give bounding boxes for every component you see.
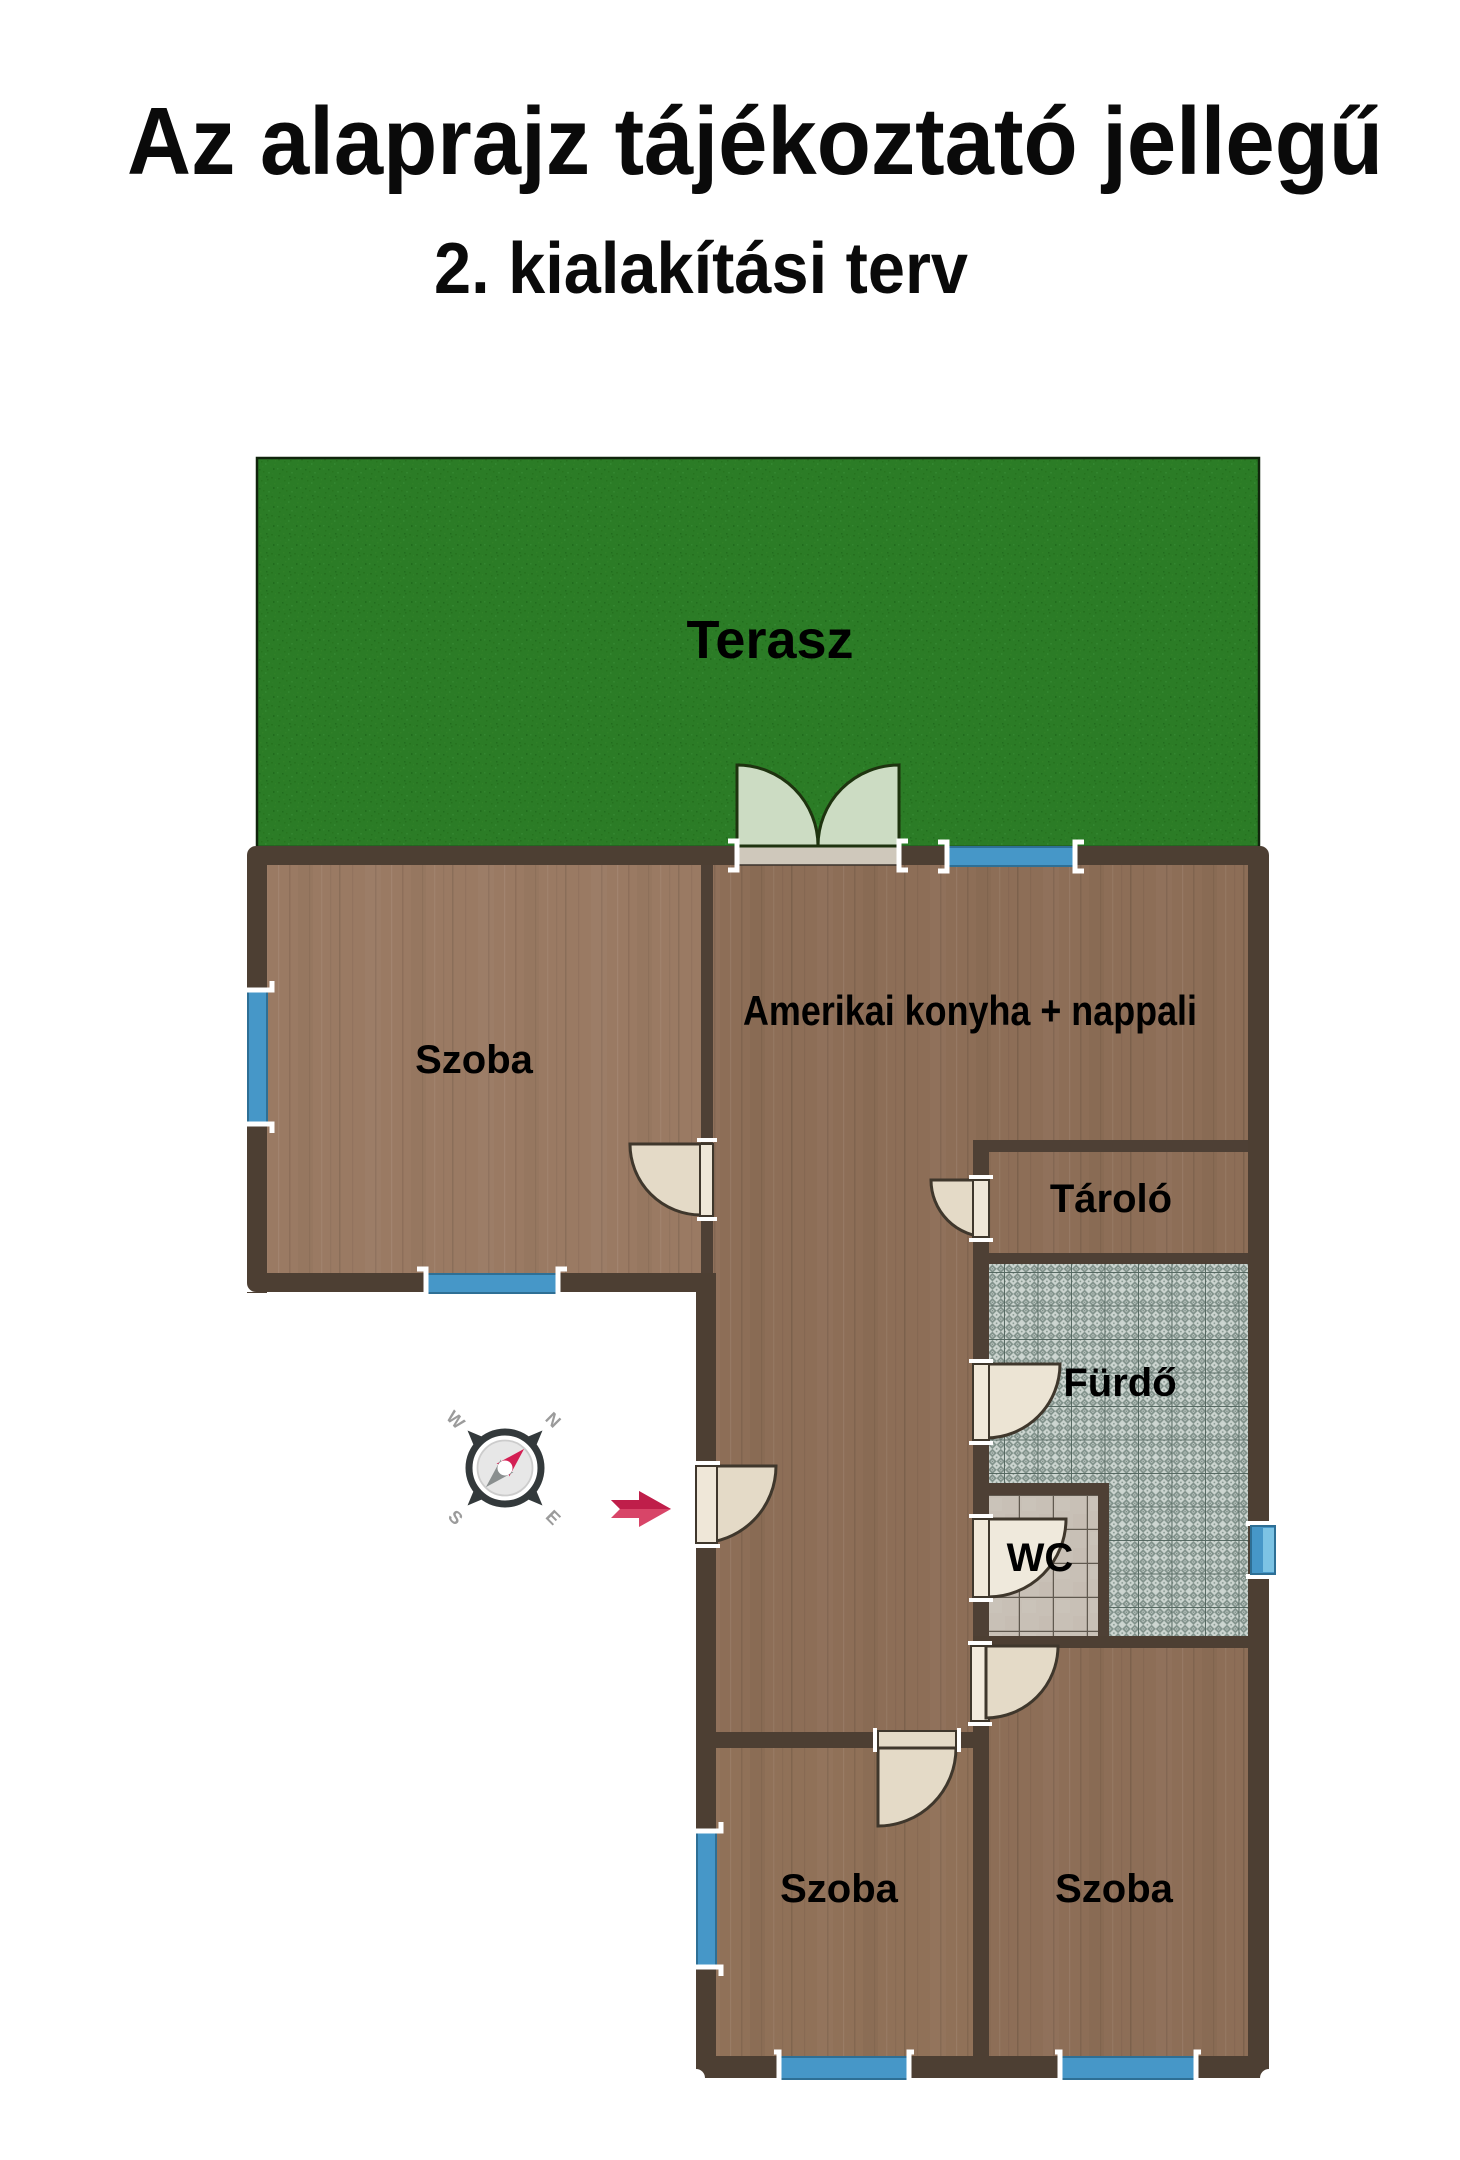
svg-text:Fürdő: Fürdő [1063,1361,1176,1405]
svg-text:Szoba: Szoba [415,1038,534,1082]
svg-text:Az alaprajz tájékoztató jelleg: Az alaprajz tájékoztató jellegű [127,88,1383,195]
svg-text:WC: WC [1007,1536,1074,1580]
svg-text:Terasz: Terasz [686,610,853,670]
svg-text:Tároló: Tároló [1050,1177,1172,1221]
svg-text:2. kialakítási terv: 2. kialakítási terv [434,229,968,309]
svg-text:Szoba: Szoba [780,1867,899,1911]
svg-text:Szoba: Szoba [1055,1867,1174,1911]
svg-text:Amerikai konyha + nappali: Amerikai konyha + nappali [743,987,1197,1034]
